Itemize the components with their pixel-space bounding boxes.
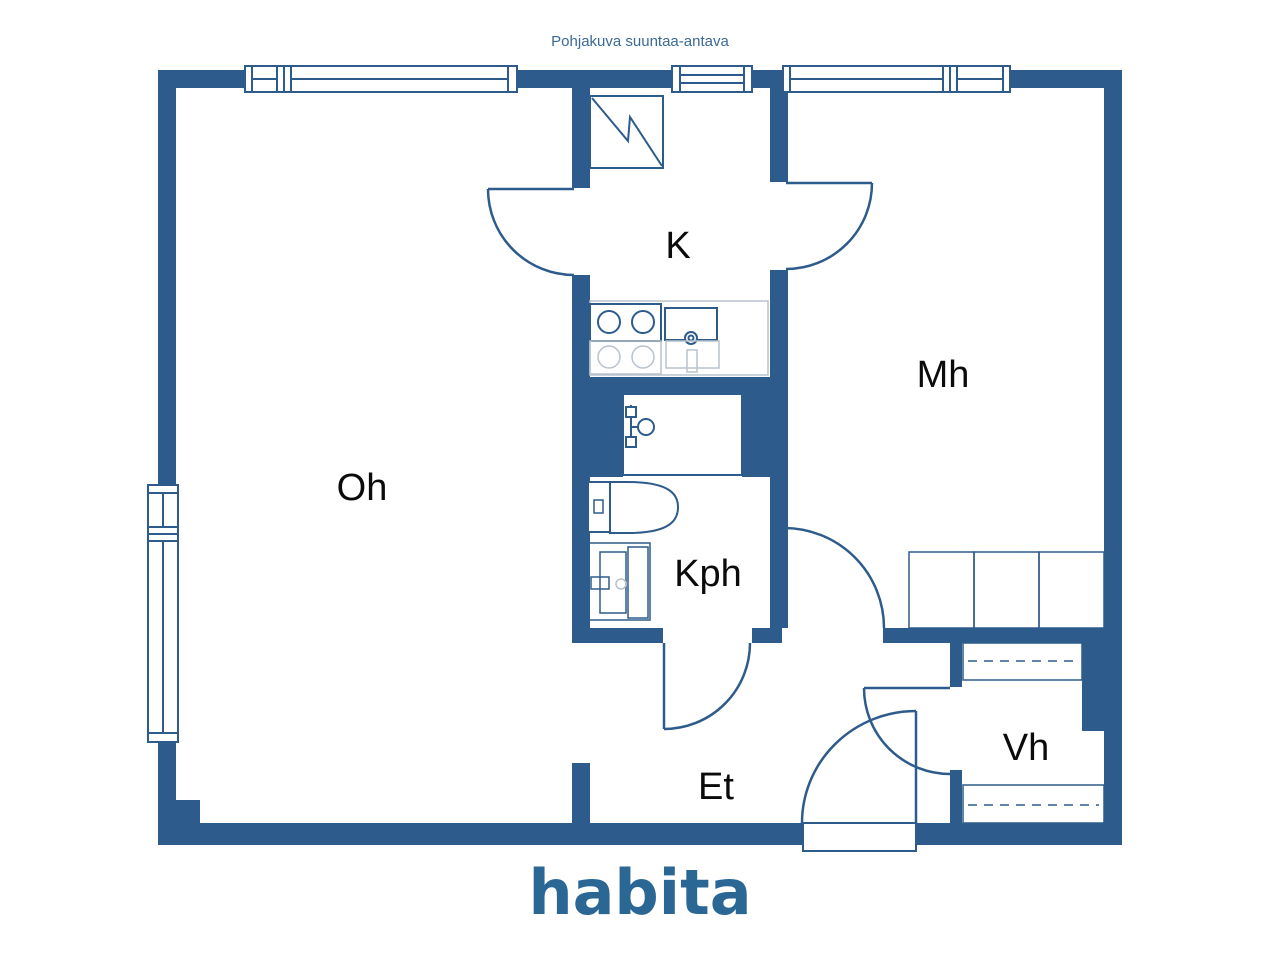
closet-shelf-top xyxy=(963,643,1082,680)
door-mh-et xyxy=(784,528,884,628)
closet-shelf-bottom xyxy=(963,785,1104,823)
room-label-closet: Vh xyxy=(1003,727,1049,769)
window-kitchen xyxy=(672,66,752,92)
washbasin-icon xyxy=(588,543,650,620)
door-k-mh xyxy=(786,183,872,269)
wardrobe xyxy=(909,552,1104,628)
floorplan: K Mh Oh Kph Et Vh xyxy=(0,0,1280,965)
room-label-kitchen: K xyxy=(665,225,690,267)
door-et-vh xyxy=(864,688,950,774)
floorplan-svg: K Mh Oh Kph Et Vh xyxy=(0,0,1280,960)
fridge-icon xyxy=(590,96,663,168)
stove-icon xyxy=(590,304,661,374)
door-entrance xyxy=(802,711,916,851)
window-top-left xyxy=(245,66,517,92)
room-label-bedroom: Mh xyxy=(917,354,970,396)
door-k-oh xyxy=(488,189,574,275)
room-label-entrance: Et xyxy=(698,766,734,808)
door-kph-et xyxy=(664,643,750,729)
room-label-livingroom: Oh xyxy=(337,467,388,509)
window-top-right xyxy=(783,66,1010,92)
window-left xyxy=(148,485,178,742)
room-label-bathroom: Kph xyxy=(674,553,742,595)
shower-mixer-icon xyxy=(623,394,742,475)
sink-icon xyxy=(665,308,719,372)
habita-logo: habita xyxy=(0,856,1280,929)
toilet-icon xyxy=(588,482,678,533)
